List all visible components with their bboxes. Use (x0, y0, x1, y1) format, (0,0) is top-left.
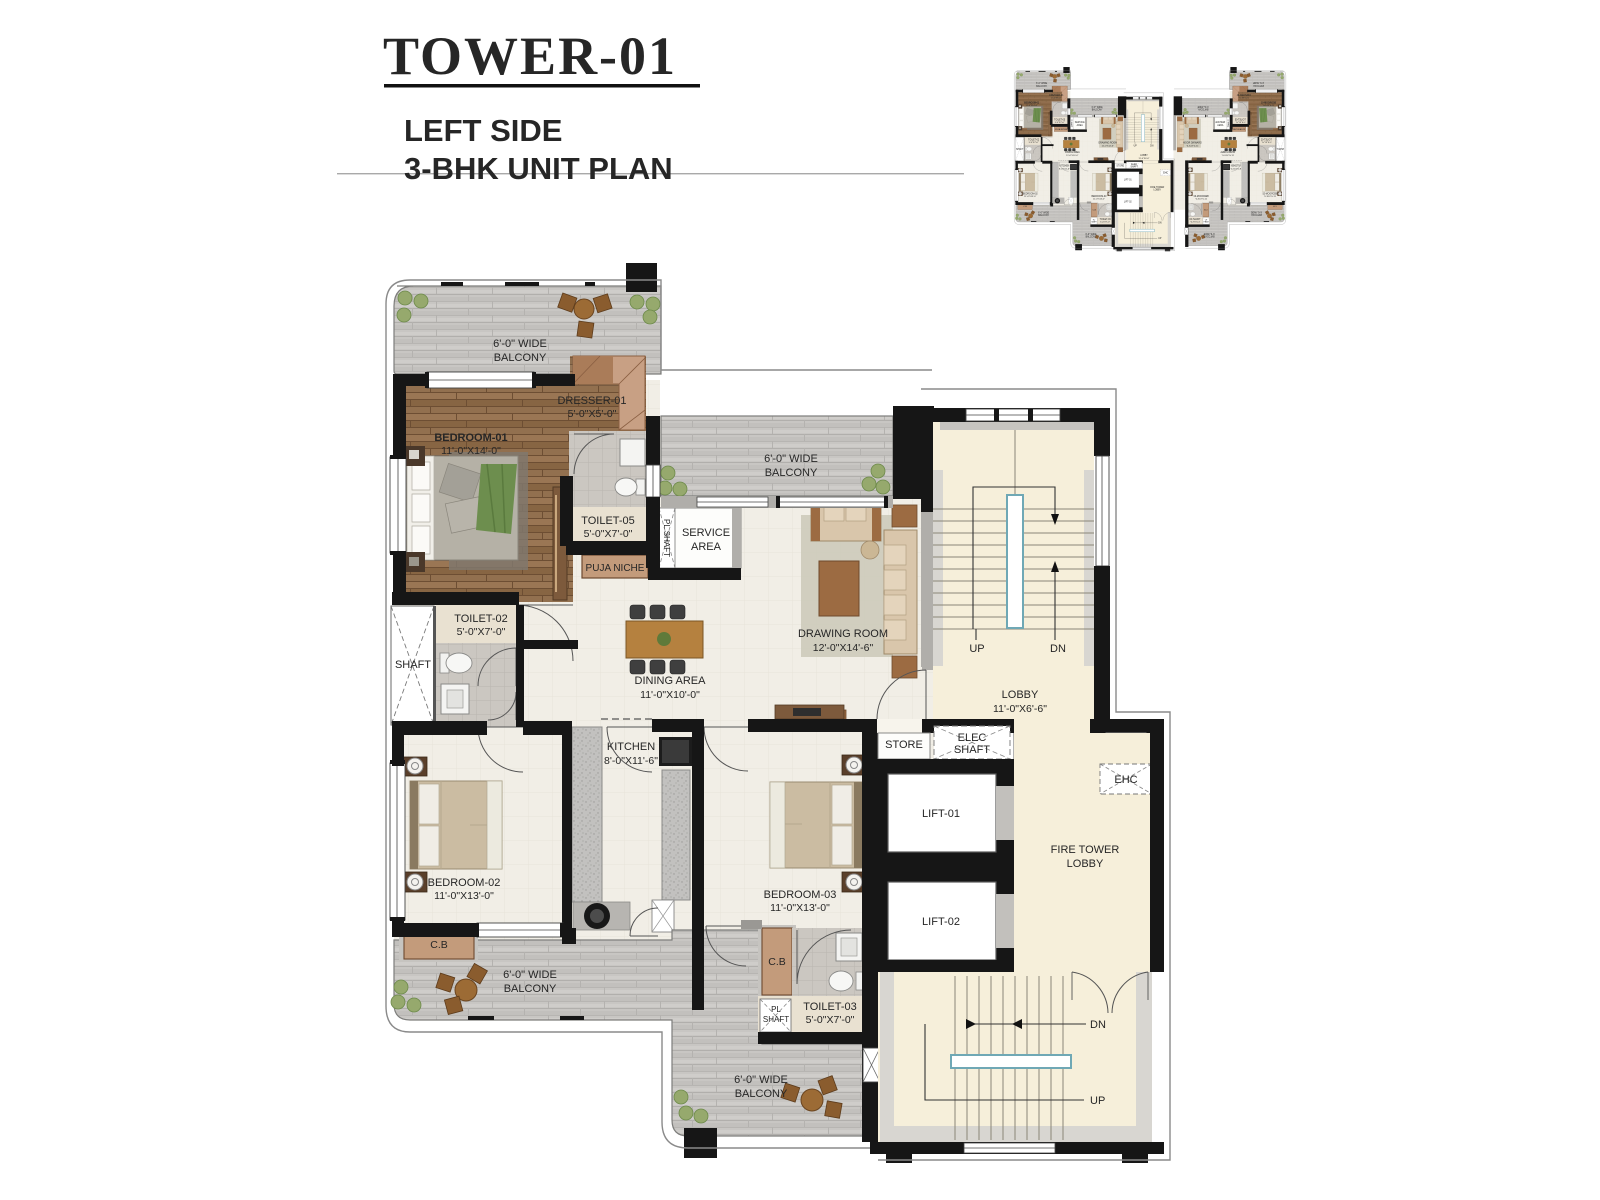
svg-text:3-BHK UNIT PLAN: 3-BHK UNIT PLAN (404, 151, 673, 186)
svg-text:DINING AREA: DINING AREA (635, 675, 707, 687)
svg-text:C.B: C.B (768, 956, 786, 968)
svg-text:LEFT SIDE: LEFT SIDE (404, 113, 562, 148)
svg-text:SERVICE: SERVICE (682, 527, 730, 539)
svg-text:5'-0"X5'-0": 5'-0"X5'-0" (568, 408, 617, 420)
svg-text:BALCONY: BALCONY (494, 352, 547, 364)
svg-text:8'-0"X11'-6": 8'-0"X11'-6" (604, 755, 658, 767)
svg-text:DRAWING ROOM: DRAWING ROOM (798, 628, 888, 640)
svg-text:LIFT-02: LIFT-02 (922, 916, 960, 928)
svg-text:UP: UP (1090, 1095, 1105, 1107)
svg-text:TOILET-05: TOILET-05 (581, 515, 635, 527)
svg-text:5'-0"X7'-0": 5'-0"X7'-0" (806, 1014, 855, 1026)
svg-text:PL SHAFT: PL SHAFT (662, 519, 671, 557)
svg-text:SHAFT: SHAFT (763, 1015, 789, 1024)
svg-text:5'-0"X7'-0": 5'-0"X7'-0" (457, 626, 506, 638)
svg-text:BEDROOM-01: BEDROOM-01 (434, 432, 507, 444)
svg-text:6'-0" WIDE: 6'-0" WIDE (493, 338, 547, 350)
svg-text:11'-0"X6'-6": 11'-0"X6'-6" (993, 703, 1047, 715)
svg-text:EHC: EHC (1114, 774, 1137, 786)
svg-text:TOILET-03: TOILET-03 (803, 1001, 857, 1013)
svg-text:SHAFT: SHAFT (954, 744, 990, 756)
svg-text:PUJA NICHE: PUJA NICHE (586, 563, 645, 574)
svg-text:BALCONY: BALCONY (735, 1088, 788, 1100)
svg-text:6'-0" WIDE: 6'-0" WIDE (764, 453, 818, 465)
svg-text:11'-0"X13'-0": 11'-0"X13'-0" (770, 902, 830, 914)
svg-text:C.B: C.B (430, 939, 448, 951)
svg-text:DN: DN (1050, 643, 1066, 655)
svg-text:TOWER-01: TOWER-01 (383, 26, 677, 86)
svg-text:11'-0"X14'-0": 11'-0"X14'-0" (441, 445, 501, 457)
svg-text:BEDROOM-03: BEDROOM-03 (764, 889, 837, 901)
svg-text:PL: PL (771, 1005, 781, 1014)
svg-text:LOBBY: LOBBY (1067, 858, 1104, 870)
svg-text:6'-0" WIDE: 6'-0" WIDE (503, 969, 557, 981)
svg-text:TOILET-02: TOILET-02 (454, 613, 508, 625)
svg-text:11'-0"X13'-0": 11'-0"X13'-0" (434, 890, 494, 902)
svg-text:FIRE TOWER: FIRE TOWER (1051, 844, 1120, 856)
svg-text:BEDROOM-02: BEDROOM-02 (428, 877, 501, 889)
svg-text:DRESSER-01: DRESSER-01 (557, 395, 626, 407)
svg-text:12'-0"X14'-6": 12'-0"X14'-6" (813, 642, 874, 654)
svg-text:5'-0"X7'-0": 5'-0"X7'-0" (584, 528, 633, 540)
svg-text:6'-0" WIDE: 6'-0" WIDE (734, 1074, 788, 1086)
svg-text:BALCONY: BALCONY (765, 467, 818, 479)
svg-text:11'-0"X10'-0": 11'-0"X10'-0" (640, 689, 700, 701)
svg-text:DN: DN (1090, 1019, 1106, 1031)
svg-text:BALCONY: BALCONY (504, 983, 557, 995)
svg-text:UP: UP (969, 643, 984, 655)
svg-text:LOBBY: LOBBY (1002, 689, 1039, 701)
svg-text:STORE: STORE (885, 739, 923, 751)
svg-text:ELEC: ELEC (958, 732, 987, 744)
svg-text:AREA: AREA (691, 541, 722, 553)
svg-text:LIFT-01: LIFT-01 (922, 808, 960, 820)
svg-text:SHAFT: SHAFT (395, 659, 431, 671)
